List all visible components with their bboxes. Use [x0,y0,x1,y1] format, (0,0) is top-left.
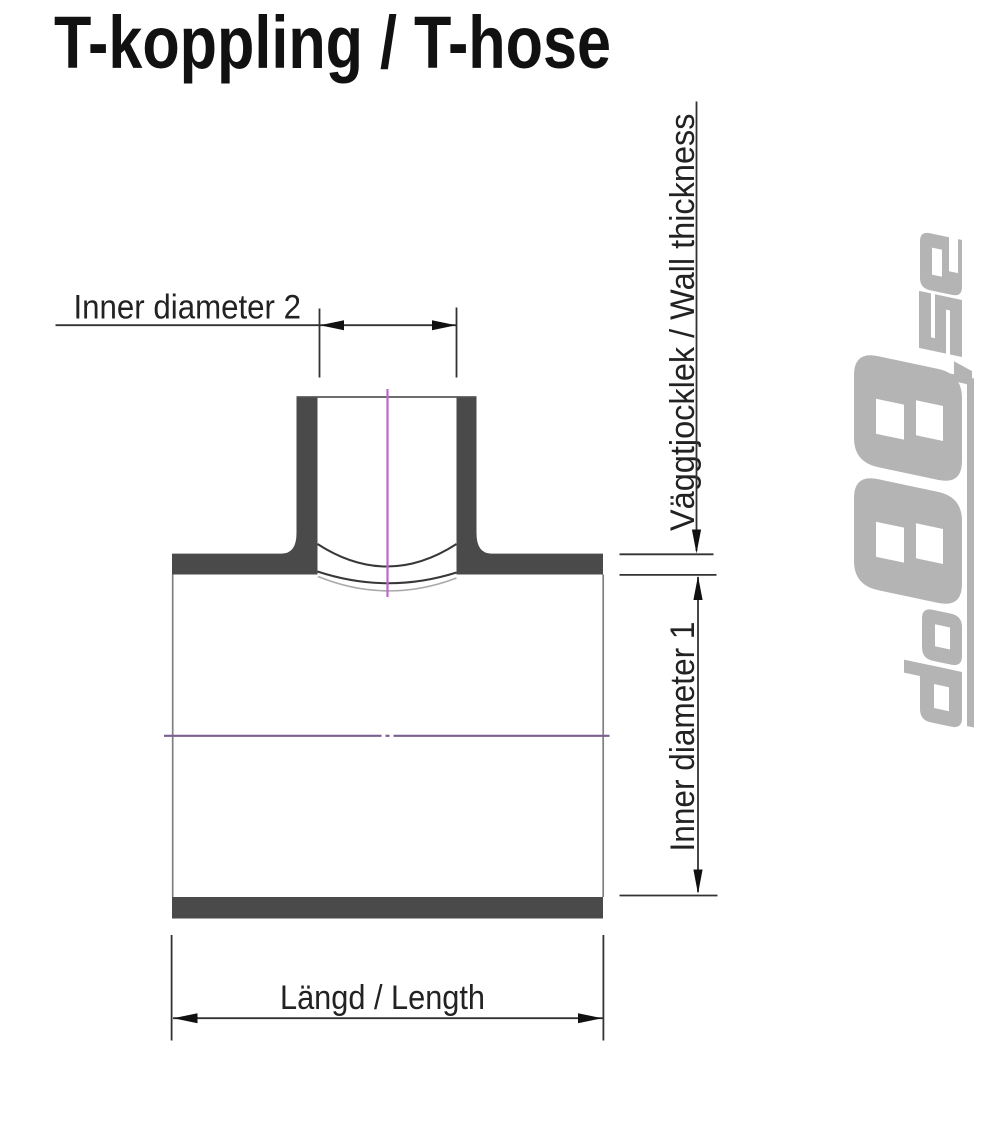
svg-text:Längd / Length: Längd / Length [280,979,485,1017]
svg-text:Inner diameter 1: Inner diameter 1 [664,622,702,852]
svg-text:T-koppling / T-hose: T-koppling / T-hose [54,1,611,84]
svg-text:Inner diameter 2: Inner diameter 2 [74,289,302,327]
